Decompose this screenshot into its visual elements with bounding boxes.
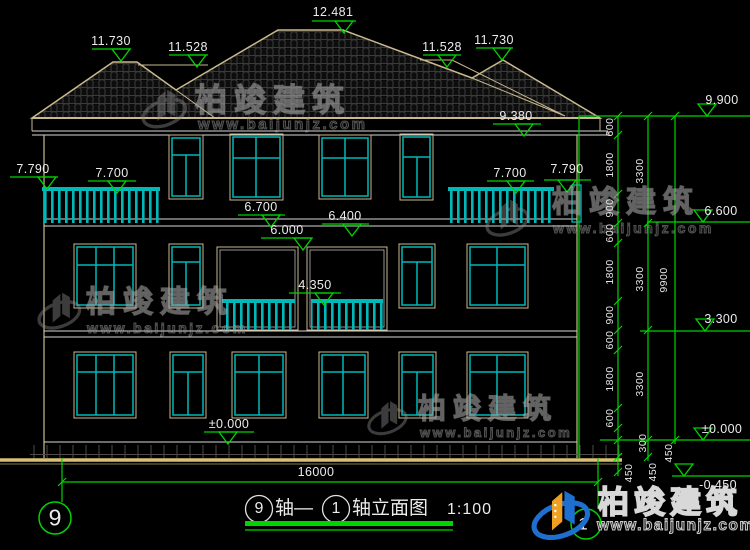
cad-elevation-drawing: 柏竣建筑 www.baijunjz.com 柏竣建筑 www.baijunjz.… — [0, 0, 750, 550]
brand-name: 柏竣建筑 — [598, 487, 742, 518]
brand-logo-icon — [530, 480, 596, 550]
footer-brand: 柏竣建筑 www.baijunjz.com — [0, 0, 750, 550]
brand-url: www.baijunjz.com — [597, 518, 750, 534]
